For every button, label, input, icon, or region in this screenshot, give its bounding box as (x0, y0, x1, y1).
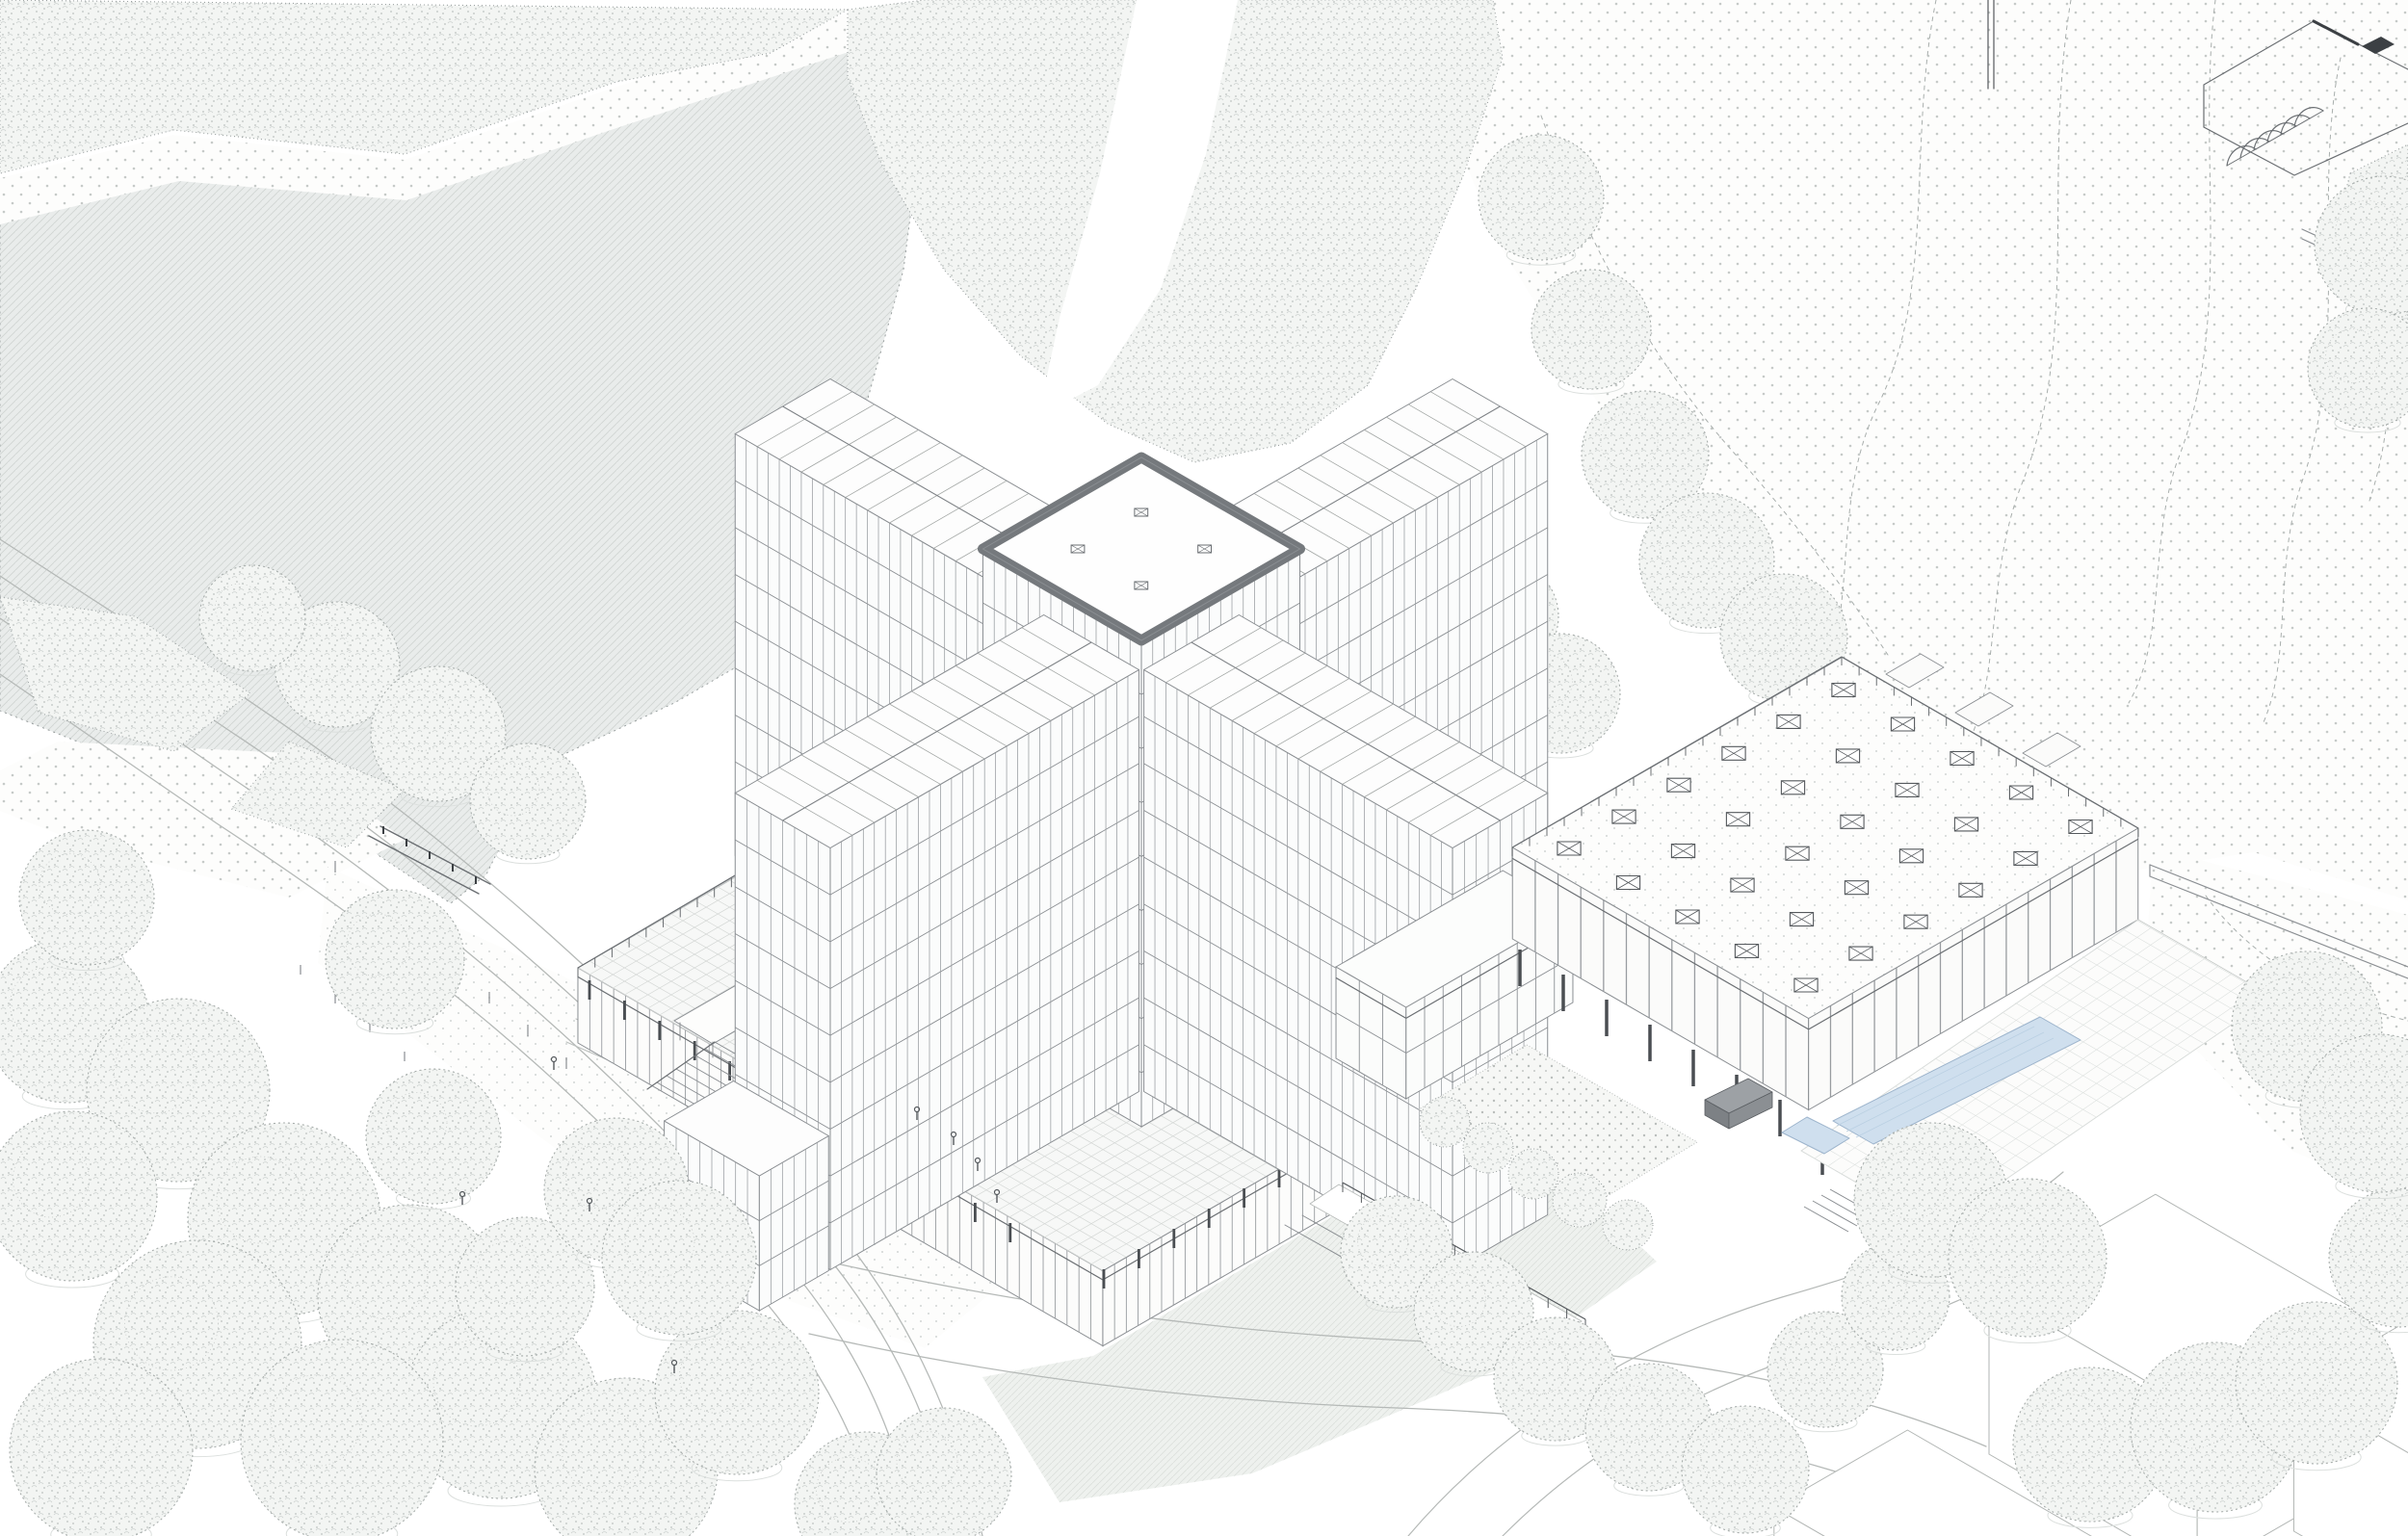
drawing-canvas (0, 0, 2408, 1536)
site-axonometric-drawing (0, 0, 2408, 1536)
